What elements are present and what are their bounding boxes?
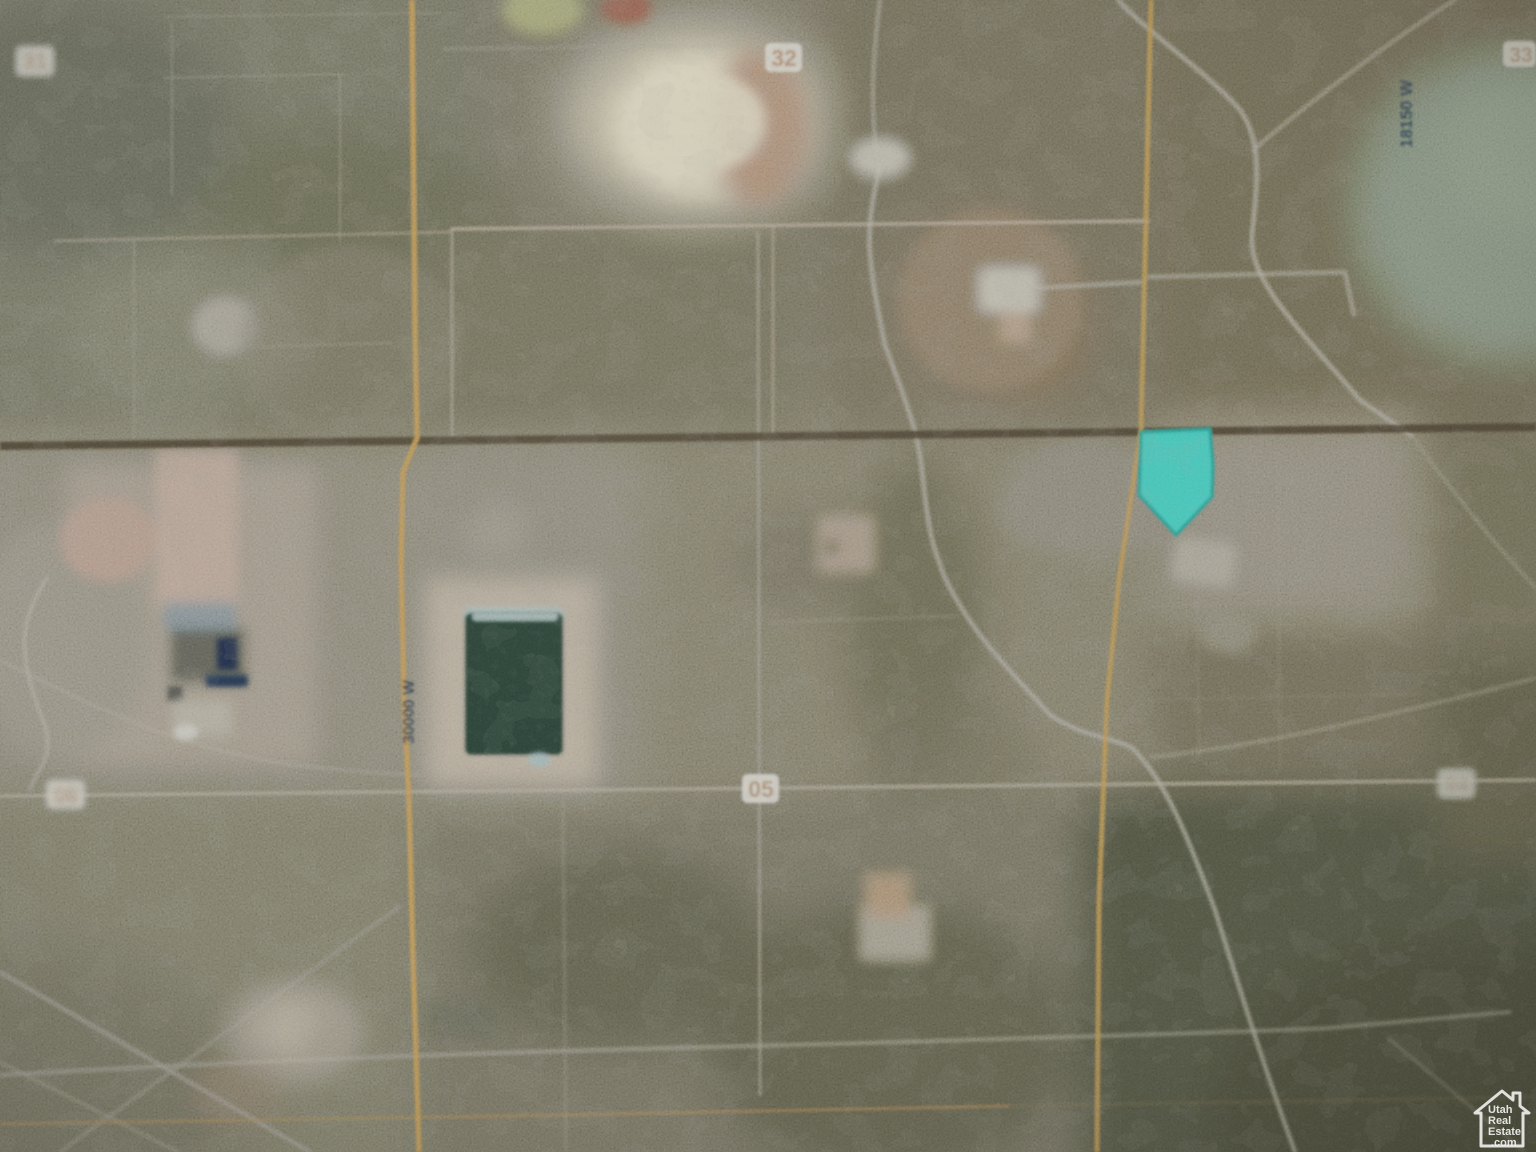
svg-text:.com: .com	[1491, 1137, 1517, 1149]
